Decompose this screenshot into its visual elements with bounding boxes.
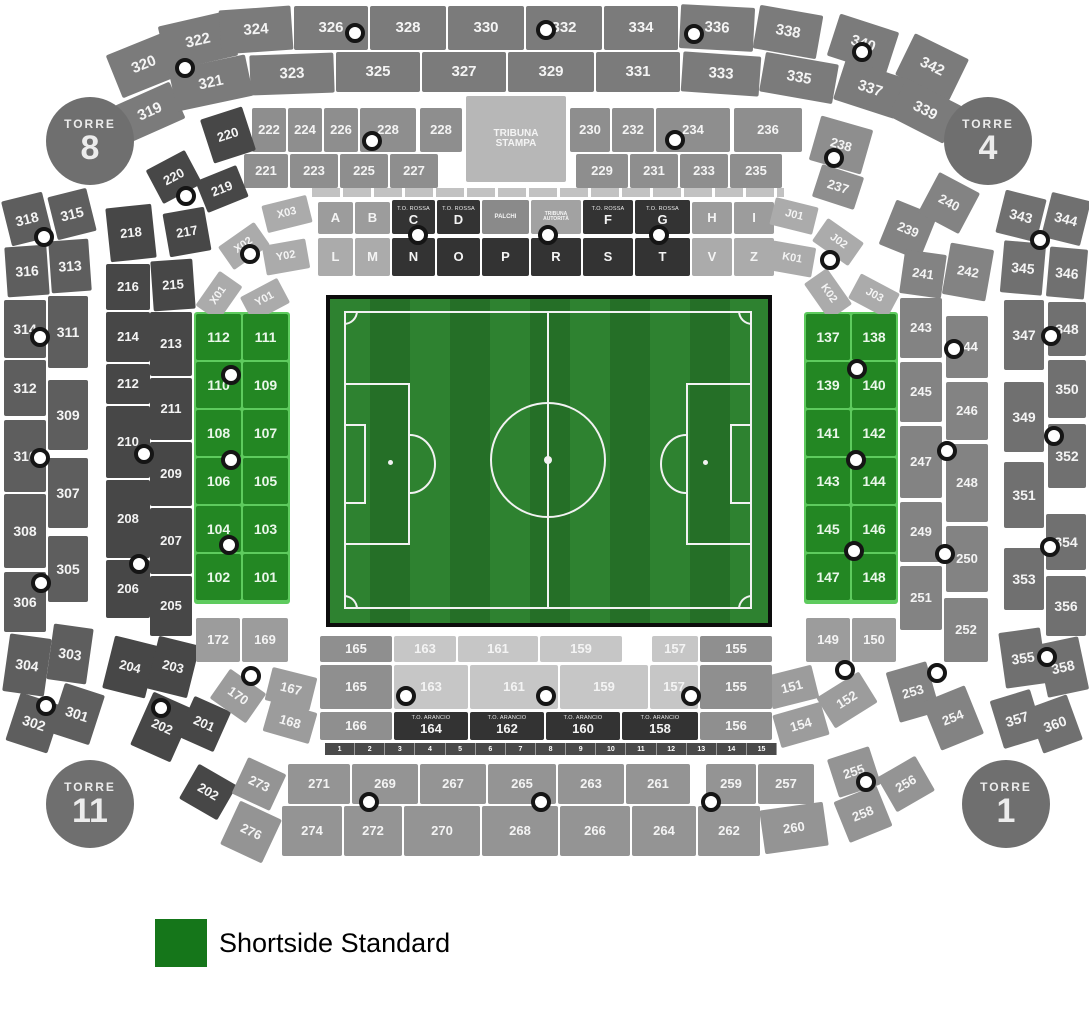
section-label: 147: [816, 570, 839, 585]
section-label: 270: [431, 824, 453, 838]
section-166[interactable]: 166: [320, 712, 392, 740]
section-159[interactable]: 159: [540, 636, 622, 662]
section-label: 106: [207, 474, 230, 489]
section-154[interactable]: 154: [772, 702, 829, 748]
section-label: 241: [911, 266, 934, 283]
section-label: 154: [789, 715, 814, 734]
section-label: 231: [643, 164, 665, 178]
section-label: 261: [647, 777, 669, 791]
section-label: 336: [704, 19, 730, 36]
section-138[interactable]: 138: [852, 314, 896, 360]
section-r[interactable]: R: [531, 238, 581, 276]
legend: Shortside Standard: [155, 919, 450, 967]
section-210[interactable]: 210: [106, 406, 150, 478]
section-label: 239: [895, 220, 920, 241]
section-label: 139: [816, 378, 839, 393]
section-229[interactable]: 229: [576, 154, 628, 188]
section-102[interactable]: 102: [196, 554, 241, 600]
section-label: 232: [622, 123, 644, 137]
section-label: 344: [1053, 209, 1079, 229]
section-label: X03: [276, 206, 298, 222]
section-330[interactable]: 330: [448, 6, 524, 50]
section-label: 265: [511, 777, 533, 791]
section-label: 335: [785, 68, 812, 88]
section-label: 152: [834, 688, 860, 711]
section-360[interactable]: 360: [1027, 694, 1083, 753]
section-160[interactable]: T.O. ARANCIO160: [546, 712, 620, 740]
section-228[interactable]: 228: [420, 108, 462, 152]
section-307[interactable]: 307: [48, 458, 88, 528]
section-o[interactable]: O: [437, 238, 480, 276]
pitch-center-spot: [544, 456, 552, 464]
gate-marker-icon: [536, 686, 556, 706]
section-347[interactable]: 347: [1004, 300, 1044, 370]
gate-marker-icon: [1037, 647, 1057, 667]
section-label: F: [604, 213, 612, 227]
section-161[interactable]: 161: [458, 636, 538, 662]
row-number-15: 15: [747, 743, 777, 755]
section-f[interactable]: T.O. ROSSAF: [583, 200, 633, 234]
section-267[interactable]: 267: [420, 764, 486, 804]
row-number-4: 4: [415, 743, 445, 755]
section-label: 322: [184, 31, 212, 52]
section-b[interactable]: B: [355, 202, 390, 234]
section-172[interactable]: 172: [196, 618, 240, 662]
section-139[interactable]: 139: [806, 362, 850, 408]
section-label: 248: [956, 476, 978, 490]
section-312[interactable]: 312: [4, 360, 46, 416]
section-214[interactable]: 214: [106, 312, 150, 362]
section-label: 243: [910, 321, 932, 335]
section-label: 209: [160, 467, 182, 481]
section-274[interactable]: 274: [282, 806, 342, 856]
section-label: 242: [956, 263, 980, 280]
section-k01[interactable]: K01: [768, 240, 817, 277]
section-252[interactable]: 252: [944, 598, 988, 662]
section-label: I: [752, 211, 756, 225]
gate-marker-icon: [536, 20, 556, 40]
section-d[interactable]: T.O. ROSSAD: [437, 200, 480, 234]
section-108[interactable]: 108: [196, 410, 241, 456]
gate-marker-icon: [847, 359, 867, 379]
section-label: 218: [119, 225, 142, 241]
section-325[interactable]: 325: [336, 52, 420, 92]
section-163[interactable]: 163: [394, 636, 456, 662]
torre-number: 1: [997, 794, 1016, 828]
section-243[interactable]: 243: [900, 298, 942, 358]
section-207[interactable]: 207: [150, 508, 192, 574]
section-a[interactable]: A: [318, 202, 353, 234]
section-208[interactable]: 208: [106, 480, 150, 558]
section-label: 355: [1010, 649, 1035, 667]
section-label: 201: [191, 713, 216, 734]
section-205[interactable]: 205: [150, 576, 192, 636]
section-225[interactable]: 225: [340, 154, 388, 188]
section-label: Y02: [275, 250, 296, 265]
section-label: 269: [374, 777, 396, 791]
section-label: 228: [430, 123, 452, 137]
section-label: J02: [827, 232, 849, 252]
section-label: 144: [862, 474, 885, 489]
section-142[interactable]: 142: [852, 410, 896, 456]
section-268[interactable]: 268: [482, 806, 558, 856]
section-label: 262: [718, 824, 740, 838]
section-353[interactable]: 353: [1004, 548, 1044, 610]
gate-marker-icon: [30, 448, 50, 468]
section-241[interactable]: 241: [899, 249, 947, 298]
section-215[interactable]: 215: [150, 259, 195, 312]
section-245[interactable]: 245: [900, 362, 942, 422]
section-label: 165: [345, 642, 367, 656]
section-label: 163: [420, 680, 442, 694]
section-label: 338: [774, 22, 801, 42]
section-label: H: [707, 211, 716, 225]
section-264[interactable]: 264: [632, 806, 696, 856]
section-350[interactable]: 350: [1048, 360, 1086, 418]
section-329[interactable]: 329: [508, 52, 594, 92]
gate-marker-icon: [681, 686, 701, 706]
section-m[interactable]: M: [355, 238, 390, 276]
section-226[interactable]: 226: [324, 108, 358, 152]
section-151[interactable]: 151: [765, 665, 820, 710]
section-label: 316: [15, 263, 39, 279]
section-label: K02: [817, 282, 838, 305]
section-145[interactable]: 145: [806, 506, 850, 552]
section-111[interactable]: 111: [243, 314, 288, 360]
section-y02[interactable]: Y02: [262, 238, 311, 275]
section-label: 329: [538, 64, 563, 80]
gate-marker-icon: [151, 698, 171, 718]
section-358[interactable]: 358: [1037, 636, 1089, 698]
section-155[interactable]: 155: [700, 665, 772, 709]
section-107[interactable]: 107: [243, 410, 288, 456]
section-222[interactable]: 222: [252, 108, 286, 152]
section-label: 257: [775, 777, 797, 791]
section-162[interactable]: T.O. ARANCIO162: [470, 712, 544, 740]
section-271[interactable]: 271: [288, 764, 350, 804]
section-label: 205: [160, 599, 182, 613]
gate-marker-icon: [665, 130, 685, 150]
section-213[interactable]: 213: [150, 312, 192, 376]
section-label: 312: [13, 381, 36, 396]
section-sub-label: T.O. ARANCIO: [488, 716, 527, 722]
gate-marker-icon: [219, 535, 239, 555]
section-label: 350: [1055, 382, 1078, 397]
section-232[interactable]: 232: [612, 108, 654, 152]
section-label: 346: [1055, 265, 1080, 282]
section-label: 155: [725, 642, 747, 656]
section-label: 330: [473, 20, 498, 36]
section-h[interactable]: H: [692, 202, 732, 234]
section-149[interactable]: 149: [806, 618, 850, 662]
section-238[interactable]: 238: [809, 115, 874, 174]
section-334[interactable]: 334: [604, 6, 678, 50]
section-257[interactable]: 257: [758, 764, 814, 804]
section-l[interactable]: L: [318, 238, 353, 276]
section-155[interactable]: 155: [700, 636, 772, 662]
section-301[interactable]: 301: [49, 683, 105, 745]
upper-walkway-strip: [312, 188, 784, 197]
section-label: 352: [1055, 449, 1078, 464]
section-label: 230: [579, 123, 601, 137]
section-338[interactable]: 338: [753, 5, 824, 59]
section-label: 155: [725, 680, 747, 694]
gate-marker-icon: [1040, 537, 1060, 557]
section-101[interactable]: 101: [243, 554, 288, 600]
section-233[interactable]: 233: [680, 154, 728, 188]
section-304[interactable]: 304: [2, 633, 52, 696]
section-216[interactable]: 216: [106, 264, 150, 310]
torre-number: 4: [979, 131, 998, 165]
section-label: 303: [57, 645, 82, 663]
gate-marker-icon: [684, 24, 704, 44]
section-label: 268: [509, 824, 531, 838]
section-165[interactable]: 165: [320, 665, 392, 709]
section-v[interactable]: V: [692, 238, 732, 276]
section-261[interactable]: 261: [626, 764, 690, 804]
section-202[interactable]: 202: [179, 764, 237, 821]
section-230[interactable]: 230: [570, 108, 610, 152]
section-311[interactable]: 311: [48, 296, 88, 368]
section-label: 229: [591, 164, 613, 178]
row-number-3: 3: [385, 743, 415, 755]
section-label: 143: [816, 474, 839, 489]
section-label: TRIBUNA STAMPA: [494, 129, 539, 150]
gate-marker-icon: [1041, 326, 1061, 346]
torre-11: TORRE11: [46, 760, 134, 848]
section-349[interactable]: 349: [1004, 382, 1044, 452]
section-label: 343: [1008, 206, 1034, 226]
section-label: 165: [345, 680, 367, 694]
section-label: 142: [862, 426, 885, 441]
section-260[interactable]: 260: [759, 802, 829, 854]
section-label: Y01: [254, 290, 277, 309]
section-label: 259: [720, 777, 742, 791]
section-217[interactable]: 217: [162, 207, 211, 258]
section-s[interactable]: S: [583, 238, 633, 276]
section-316[interactable]: 316: [4, 245, 49, 298]
section-327[interactable]: 327: [422, 52, 506, 92]
section-211[interactable]: 211: [150, 378, 192, 440]
section-label: 339: [910, 98, 939, 123]
section-label: TRIBUNA AUTORITÀ: [543, 212, 569, 223]
section-303[interactable]: 303: [46, 623, 93, 684]
section-231[interactable]: 231: [630, 154, 678, 188]
section-sub-label: T.O. ARANCIO: [641, 716, 680, 722]
section-label: 263: [580, 777, 602, 791]
section-224[interactable]: 224: [288, 108, 322, 152]
section-323[interactable]: 323: [249, 53, 334, 96]
section-227[interactable]: 227: [390, 154, 438, 188]
section-label: N: [409, 250, 418, 264]
section-169[interactable]: 169: [242, 618, 288, 662]
torre-4: TORRE4: [944, 97, 1032, 185]
section-label: 226: [330, 123, 352, 137]
section-label: 220: [161, 166, 187, 188]
torre-number: 8: [81, 131, 100, 165]
section-235[interactable]: 235: [730, 154, 782, 188]
section-label: 172: [207, 633, 229, 647]
section-label: 246: [956, 404, 978, 418]
section-label: 267: [442, 777, 464, 791]
section-label: 320: [129, 53, 158, 77]
section-147[interactable]: 147: [806, 554, 850, 600]
section-label: 315: [59, 204, 85, 224]
gate-marker-icon: [856, 772, 876, 792]
section-x03[interactable]: X03: [261, 195, 312, 233]
row-number-5: 5: [446, 743, 476, 755]
section-label: 225: [353, 164, 375, 178]
section-label: 168: [278, 712, 303, 731]
section-label: 235: [745, 164, 767, 178]
section-label: 305: [56, 562, 79, 577]
section-150[interactable]: 150: [852, 618, 896, 662]
row-number-9: 9: [566, 743, 596, 755]
gate-marker-icon: [1030, 230, 1050, 250]
legend-label: Shortside Standard: [219, 928, 450, 959]
section-label: 161: [503, 680, 525, 694]
section-label: 250: [956, 552, 978, 566]
section-209[interactable]: 209: [150, 442, 192, 506]
section-263[interactable]: 263: [558, 764, 624, 804]
section-236[interactable]: 236: [734, 108, 802, 152]
gate-marker-icon: [844, 541, 864, 561]
section-143[interactable]: 143: [806, 458, 850, 504]
section-276[interactable]: 276: [220, 801, 282, 864]
gate-marker-icon: [396, 686, 416, 706]
section-103[interactable]: 103: [243, 506, 288, 552]
section-label: Z: [750, 250, 758, 264]
section-label: 234: [682, 123, 704, 137]
section-351[interactable]: 351: [1004, 462, 1044, 528]
section-label: 109: [254, 378, 277, 393]
section-109[interactable]: 109: [243, 362, 288, 408]
section-308[interactable]: 308: [4, 494, 46, 568]
section-label: 223: [303, 164, 325, 178]
section-251[interactable]: 251: [900, 566, 942, 630]
section-266[interactable]: 266: [560, 806, 630, 856]
section-label: R: [551, 250, 560, 264]
section-label: 166: [345, 719, 367, 733]
section-148[interactable]: 148: [852, 554, 896, 600]
section-158[interactable]: T.O. ARANCIO158: [622, 712, 698, 740]
section-324[interactable]: 324: [219, 6, 294, 55]
gate-marker-icon: [846, 450, 866, 470]
section-label: 357: [1004, 709, 1031, 730]
section-112[interactable]: 112: [196, 314, 241, 360]
section-246[interactable]: 246: [946, 382, 988, 440]
section-156[interactable]: 156: [700, 712, 772, 740]
section-328[interactable]: 328: [370, 6, 446, 50]
section-242[interactable]: 242: [942, 243, 994, 302]
section-309[interactable]: 309: [48, 380, 88, 450]
section-label: 164: [420, 722, 442, 736]
section-sub-label: T.O. ROSSA: [397, 207, 430, 213]
gate-marker-icon: [820, 250, 840, 270]
pitch-goal-area-right: [730, 424, 752, 504]
row-number-strip: 123456789101112131415: [325, 743, 777, 755]
section-label: 222: [258, 123, 280, 137]
stadium-map: 123456789101112131415 Shortside Standard…: [0, 0, 1089, 1032]
section-label: 220: [216, 125, 241, 145]
section-141[interactable]: 141: [806, 410, 850, 456]
section-label: 146: [862, 522, 885, 537]
section-label: P: [501, 250, 510, 264]
section-221[interactable]: 221: [244, 154, 288, 188]
section-palchi[interactable]: PALCHI: [482, 200, 529, 234]
section-346[interactable]: 346: [1046, 246, 1088, 299]
section-label: 256: [893, 773, 919, 796]
section-256[interactable]: 256: [877, 756, 935, 813]
section-sub-label: T.O. ROSSA: [442, 207, 475, 213]
section-333[interactable]: 333: [681, 51, 762, 96]
section-159[interactable]: 159: [560, 665, 648, 709]
section-label: 141: [816, 426, 839, 441]
gate-marker-icon: [34, 227, 54, 247]
section-219[interactable]: 219: [195, 165, 249, 213]
section-105[interactable]: 105: [243, 458, 288, 504]
torre-1: TORRE1: [962, 760, 1050, 848]
section-z[interactable]: Z: [734, 238, 774, 276]
gate-marker-icon: [31, 573, 51, 593]
legend-swatch-shortside-standard: [155, 919, 207, 967]
section-315[interactable]: 315: [47, 188, 96, 240]
section-label: 311: [57, 325, 80, 340]
section-137[interactable]: 137: [806, 314, 850, 360]
section-p[interactable]: P: [482, 238, 529, 276]
section-label: 245: [910, 385, 932, 399]
section-label: 313: [58, 258, 82, 274]
section-label: M: [367, 250, 378, 264]
section-i[interactable]: I: [734, 202, 774, 234]
section-247[interactable]: 247: [900, 426, 942, 498]
section-label: V: [708, 250, 717, 264]
section-sub-label: T.O. ROSSA: [592, 207, 625, 213]
section-label: 207: [160, 534, 182, 548]
section-164[interactable]: T.O. ARANCIO164: [394, 712, 468, 740]
section-313[interactable]: 313: [48, 239, 92, 294]
section-270[interactable]: 270: [404, 806, 480, 856]
section-305[interactable]: 305: [48, 536, 88, 602]
section-label: 103: [254, 522, 277, 537]
section-165[interactable]: 165: [320, 636, 392, 662]
section-label: 326: [318, 20, 343, 36]
section-157[interactable]: 157: [652, 636, 698, 662]
section-j01[interactable]: J01: [769, 197, 818, 235]
section-label: 169: [254, 633, 276, 647]
section-262[interactable]: 262: [698, 806, 760, 856]
row-number-13: 13: [687, 743, 717, 755]
section-label: 233: [693, 164, 715, 178]
section-212[interactable]: 212: [106, 364, 150, 404]
section-223[interactable]: 223: [290, 154, 338, 188]
section-label: 253: [901, 682, 926, 701]
section-label: 274: [301, 824, 323, 838]
section-label: 356: [1054, 599, 1077, 614]
section-356[interactable]: 356: [1046, 576, 1086, 636]
section-label: 156: [725, 719, 747, 733]
section-label: 337: [856, 78, 885, 101]
section-tribuna-stampa[interactable]: TRIBUNA STAMPA: [466, 96, 566, 182]
section-label: 211: [161, 402, 182, 416]
section-label: 273: [246, 773, 271, 795]
section-272[interactable]: 272: [344, 806, 402, 856]
section-335[interactable]: 335: [759, 52, 839, 104]
section-331[interactable]: 331: [596, 52, 680, 92]
section-label: 216: [117, 280, 139, 294]
row-number-1: 1: [325, 743, 355, 755]
section-218[interactable]: 218: [105, 204, 156, 263]
